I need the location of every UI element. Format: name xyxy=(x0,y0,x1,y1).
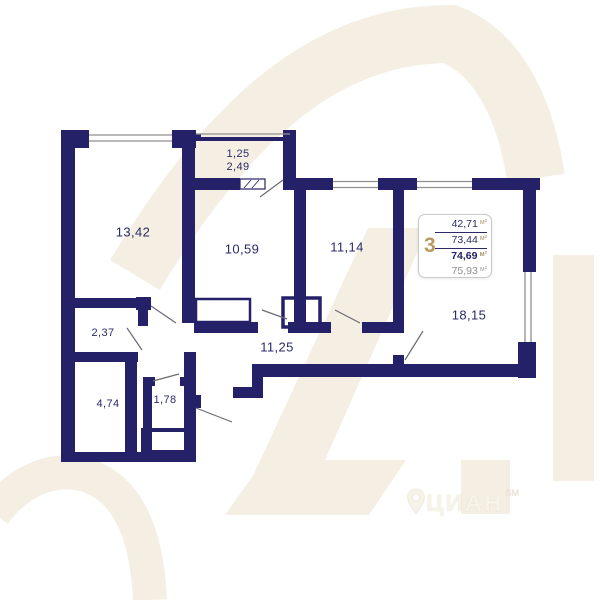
rooms-count-badge: 3 xyxy=(424,234,436,258)
area-label-living: 18,15 xyxy=(452,308,487,323)
area-label-room-13: 13,42 xyxy=(116,225,151,240)
area-value: 73,44 xyxy=(452,233,478,248)
floor-plan-page: 13,42 1,25 2,49 10,59 11,14 2,37 4,74 1,… xyxy=(0,0,600,600)
area-unit: м² xyxy=(480,262,487,277)
site-watermark-logo: ЦИАН SM xyxy=(406,487,519,521)
area-value: 74,69 xyxy=(451,249,477,264)
area-label-hall: 2,37 xyxy=(91,327,114,339)
logo-sm-mark: SM xyxy=(505,487,519,499)
logo-text: ЦИАН xyxy=(426,487,503,521)
location-pin-icon xyxy=(406,487,426,521)
area-unit: м² xyxy=(479,247,487,262)
area-label-room-10: 10,59 xyxy=(225,242,260,257)
window-sill-symbol xyxy=(240,179,265,189)
apartment-info-box: 3 42,71м² 73,44м² 74,69м² 75,93м² xyxy=(418,214,492,278)
area-value: 42,71 xyxy=(452,217,478,232)
area-value: 75,93 xyxy=(452,264,478,279)
area-label-room-4: 4,74 xyxy=(96,398,119,410)
area-unit: м² xyxy=(480,215,487,230)
area-label-corridor: 11,25 xyxy=(260,340,294,355)
area-label-balcony-width: 1,25 xyxy=(226,148,249,160)
area-label-storage: 1,78 xyxy=(153,394,176,406)
total-area-row-muted: 75,93м² xyxy=(435,264,487,279)
area-label-room-11: 11,14 xyxy=(330,240,364,255)
area-label-balcony: 2,49 xyxy=(226,161,249,173)
area-unit: м² xyxy=(480,231,487,246)
